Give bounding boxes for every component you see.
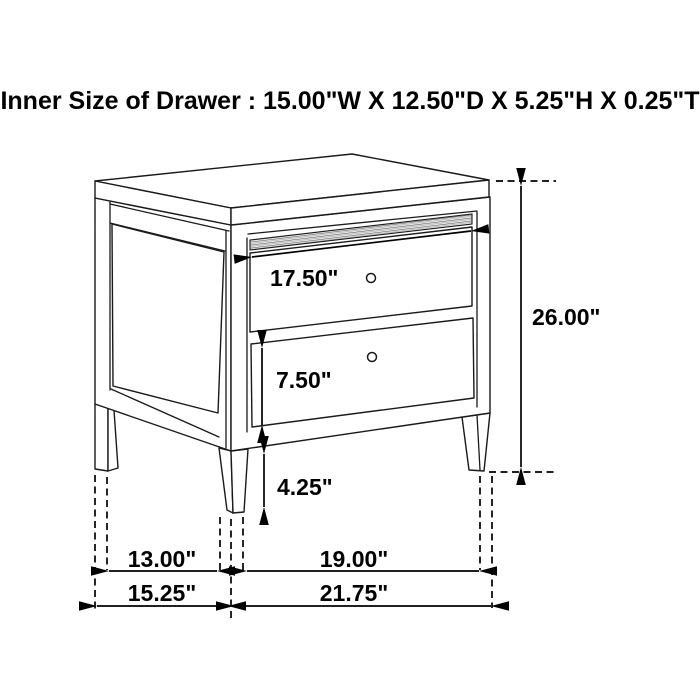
- leg-front-right: [462, 413, 490, 471]
- dimension-label-26-00: 26.00": [532, 304, 600, 330]
- dimension-label-15-25: 15.25": [128, 580, 196, 606]
- dimension-side-inner-span: 13.00": [109, 546, 217, 572]
- diagram-title: Inner Size of Drawer : 15.00"W X 12.50"D…: [0, 87, 699, 115]
- drawer-2-knob: [368, 353, 377, 362]
- drawer-1-knob: [367, 274, 376, 283]
- side-panel-inset: [112, 224, 224, 413]
- dimension-label-17-50: 17.50": [270, 265, 338, 291]
- dimension-label-19-00: 19.00": [320, 546, 388, 572]
- dimension-label-7-50: 7.50": [276, 367, 332, 393]
- dimension-overall-depth: 15.25": [97, 580, 228, 606]
- dimension-overall-width: 21.75": [234, 580, 491, 606]
- leg-rear-left: [95, 404, 118, 471]
- dimension-label-13-00: 13.00": [128, 546, 196, 572]
- side-panel: [95, 198, 231, 451]
- front-face: [231, 197, 490, 451]
- dimension-leg-height: 4.25": [264, 454, 333, 507]
- dimension-front-inner-span: 19.00": [247, 546, 479, 572]
- dimension-label-4-25: 4.25": [277, 474, 333, 500]
- dimension-overall-height: 26.00": [521, 186, 600, 467]
- diagram-page: Inner Size of Drawer : 15.00"W X 12.50"D…: [0, 0, 700, 700]
- dimension-label-21-75: 21.75": [320, 580, 388, 606]
- leg-front-left: [219, 448, 248, 513]
- nightstand-dimension-diagram: Inner Size of Drawer : 15.00"W X 12.50"D…: [0, 0, 700, 700]
- nightstand-drawing: [95, 154, 490, 513]
